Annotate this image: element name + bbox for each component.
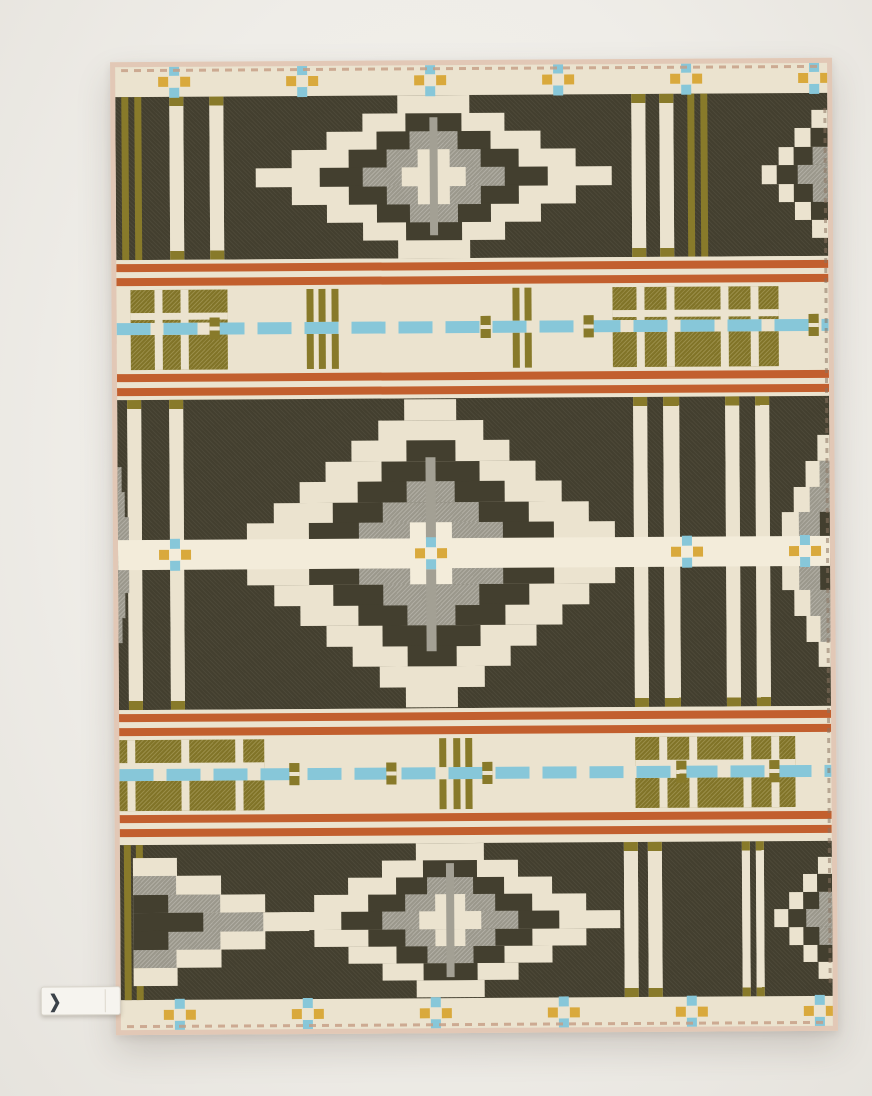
gold-square: [164, 1010, 174, 1020]
blue-square: [175, 999, 185, 1009]
blue-square: [682, 536, 692, 546]
gold-square: [671, 547, 681, 557]
mesa-motif: [118, 568, 129, 594]
blue-square: [169, 88, 179, 98]
bird-logo-icon: ❯: [49, 990, 62, 1012]
gold-square: [698, 1007, 708, 1017]
photo-backdrop: ❯: [0, 0, 872, 1096]
gold-square: [420, 1008, 430, 1018]
blue-square: [687, 996, 697, 1006]
pattern-block: [631, 94, 646, 257]
blue-square: [425, 86, 435, 96]
gold-square: [798, 73, 808, 83]
blanket-pattern: [115, 63, 833, 1030]
gold-square: [415, 548, 425, 558]
blue-square: [682, 558, 692, 568]
gold-square: [670, 74, 680, 84]
tag-fold-line: [105, 989, 106, 1012]
mesa-motif: [133, 858, 177, 877]
mesa-motif: [118, 492, 125, 518]
gold-square: [180, 77, 190, 87]
diamond-motif: [406, 687, 459, 708]
gold-square: [292, 1009, 302, 1019]
blue-square: [170, 539, 180, 549]
gold-square: [542, 75, 552, 85]
diamond-motif: [379, 666, 484, 688]
pattern-block: [134, 97, 142, 260]
bead: [482, 762, 492, 784]
diamond-center-column: [429, 117, 438, 235]
gold-square: [564, 74, 574, 84]
gold-square: [308, 76, 318, 86]
diamond-motif: [416, 843, 484, 861]
diamond-motif: [378, 419, 483, 441]
blanket: ❯: [110, 58, 838, 1035]
diamond-motif: [404, 399, 457, 420]
gold-square: [314, 1009, 324, 1019]
bead: [481, 316, 491, 338]
pattern-block: [742, 841, 751, 996]
blue-square: [800, 535, 810, 545]
blue-square: [170, 561, 180, 571]
cross-motif: [671, 536, 703, 568]
pattern-block: [648, 842, 663, 997]
diamond-center-column: [426, 569, 437, 651]
gold-square: [442, 1008, 452, 1018]
pattern-block: [687, 94, 695, 257]
cross-motif: [159, 539, 191, 571]
gold-square: [811, 546, 821, 556]
mesa-motif: [133, 894, 168, 913]
bead: [584, 315, 594, 337]
pattern-block: [700, 94, 708, 257]
blue-square: [681, 85, 691, 95]
blue-square: [426, 537, 436, 547]
pattern-block: [169, 97, 184, 260]
blue-square: [815, 995, 825, 1005]
mesa-motif: [133, 913, 204, 932]
blue-square: [809, 84, 819, 94]
pattern-block: [124, 845, 132, 1000]
blue-square: [553, 85, 563, 95]
gold-square: [437, 548, 447, 558]
diamond-center-column: [425, 457, 436, 539]
blue-square: [431, 997, 441, 1007]
pattern-block: [121, 97, 129, 260]
pattern-block: [659, 94, 674, 257]
gold-square: [158, 77, 168, 87]
gold-square: [436, 75, 446, 85]
gold-square: [414, 75, 424, 85]
pattern-block: [613, 309, 779, 317]
gold-square: [692, 74, 702, 84]
cross-motif: [415, 537, 447, 569]
blue-square: [800, 557, 810, 567]
gold-square: [570, 1007, 580, 1017]
gold-square: [676, 1007, 686, 1017]
diamond-motif: [399, 239, 470, 258]
pattern-block: [209, 97, 224, 260]
diamond-motif: [417, 980, 485, 998]
gold-square: [186, 1010, 196, 1020]
blue-square: [297, 87, 307, 97]
brand-tag: ❯: [41, 986, 121, 1015]
blue-square: [426, 559, 436, 569]
gold-square: [159, 550, 169, 560]
gold-square: [693, 547, 703, 557]
mesa-motif: [118, 467, 122, 493]
diamond-center-column: [446, 863, 455, 977]
blue-square: [559, 996, 569, 1006]
gold-square: [286, 76, 296, 86]
gold-square: [548, 1007, 558, 1017]
bead: [386, 762, 396, 784]
diamond-motif: [398, 95, 469, 114]
center-cream-stripe: [118, 536, 830, 570]
bead: [289, 763, 299, 785]
mesa-motif: [133, 931, 168, 950]
gold-square: [826, 1006, 833, 1016]
bead: [769, 760, 779, 782]
mesa-motif: [133, 949, 177, 968]
gold-square: [820, 73, 830, 83]
pattern-block: [624, 842, 639, 997]
mesa-motif: [133, 876, 177, 895]
cross-motif: [789, 535, 821, 567]
bead: [809, 314, 819, 336]
pattern-block: [756, 841, 765, 996]
mesa-motif: [118, 593, 125, 619]
blue-square: [303, 998, 313, 1008]
mesa-motif: [118, 618, 122, 644]
mesa-motif: [134, 968, 178, 987]
gold-square: [804, 1006, 814, 1016]
bead: [210, 318, 220, 340]
gold-square: [181, 550, 191, 560]
bead: [676, 761, 686, 783]
gold-square: [789, 546, 799, 556]
